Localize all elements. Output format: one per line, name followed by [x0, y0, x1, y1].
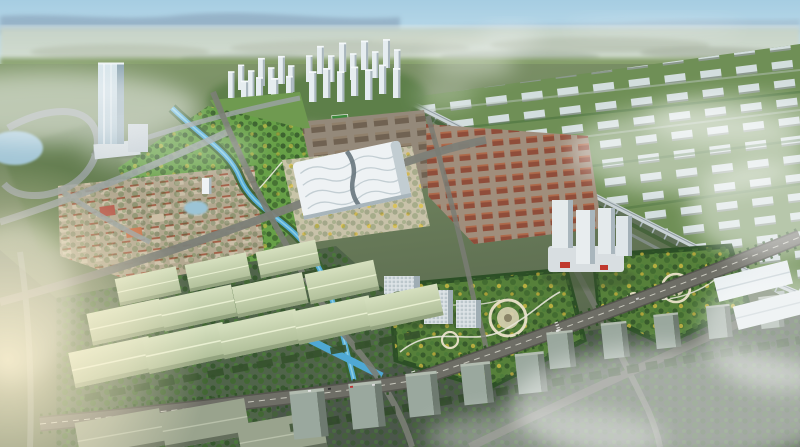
town-pond: [184, 201, 208, 215]
tower: [309, 71, 316, 102]
mall-red-sign: [560, 262, 570, 268]
tower: [393, 68, 400, 98]
tower: [383, 39, 390, 68]
office-block: [456, 300, 476, 328]
cbd-tower-side: [568, 200, 573, 248]
tower: [337, 71, 344, 102]
grey-slab: [348, 380, 386, 429]
tower: [372, 51, 379, 78]
grey-slab: [653, 312, 681, 349]
cityscape-canvas: [0, 0, 800, 447]
park1-plaza-center: [504, 314, 512, 322]
car: [350, 386, 353, 388]
tower: [278, 56, 285, 84]
cbd-tower: [576, 210, 590, 264]
grey-slab: [405, 371, 441, 418]
office-block-side: [448, 290, 453, 324]
cloud-wisp: [424, 46, 516, 78]
car: [328, 388, 331, 390]
tower: [317, 46, 324, 74]
car: [372, 384, 375, 386]
tower: [379, 65, 386, 94]
cbd-tower-side: [590, 210, 595, 264]
town-landmark-side: [209, 178, 212, 194]
mall-red-sign: [600, 265, 608, 270]
town-white-building: [152, 213, 165, 223]
cbd-tower-side: [628, 216, 632, 256]
grey-slab: [460, 361, 494, 405]
tower: [323, 68, 330, 98]
car: [308, 390, 311, 392]
tower: [361, 41, 368, 70]
cloud-wisp: [415, 83, 475, 107]
cbd-tower-side: [611, 208, 615, 254]
tower: [365, 69, 372, 100]
cbd-tower: [616, 216, 628, 256]
cloud-wisp: [480, 28, 540, 48]
grey-slab: [289, 388, 329, 440]
cbd-tower: [598, 208, 611, 254]
cbd-tower: [552, 200, 568, 248]
cityscape-rendering: [0, 0, 800, 447]
tower: [248, 70, 255, 97]
office-block-side: [476, 300, 481, 328]
tower: [228, 71, 235, 98]
tower: [339, 43, 346, 72]
town-landmark: [202, 178, 209, 194]
cloud-streak: [565, 20, 745, 36]
sprawl-patch: [30, 44, 210, 60]
tower: [351, 67, 358, 96]
cloud: [80, 126, 260, 174]
